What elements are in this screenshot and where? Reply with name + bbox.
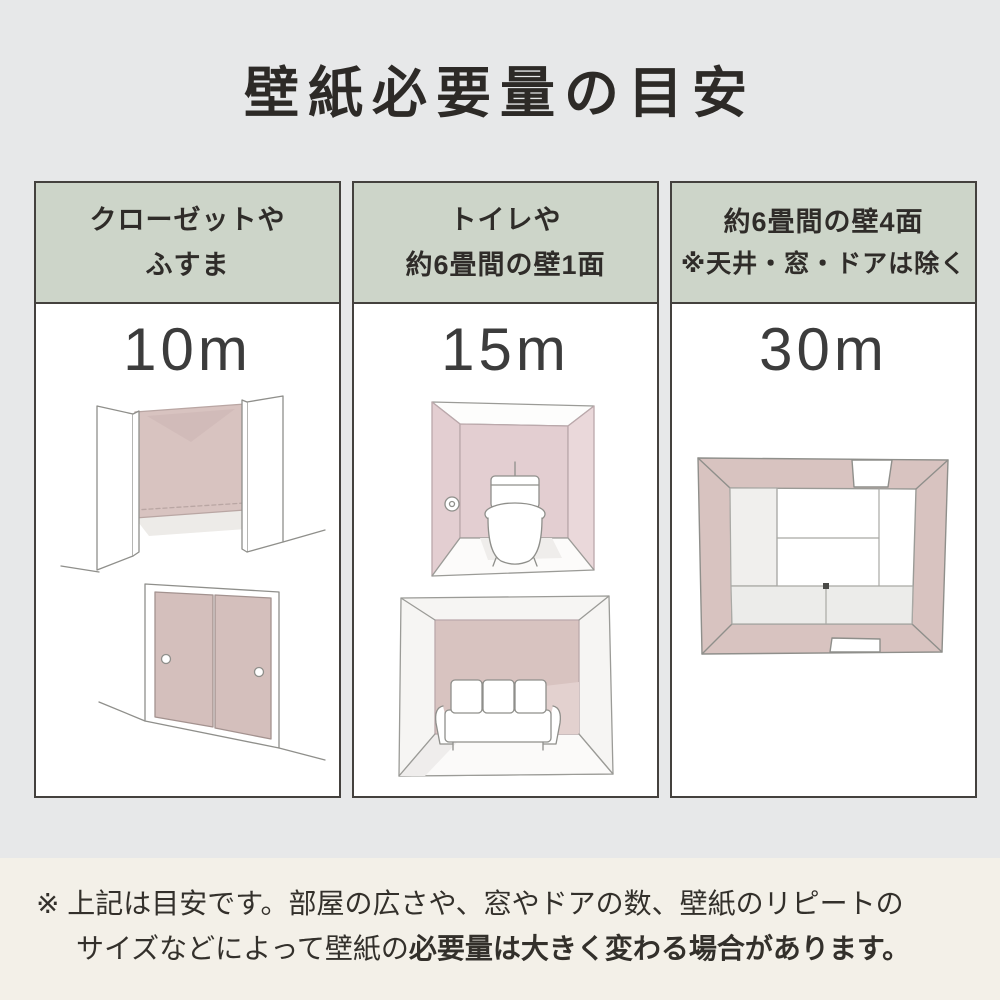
room-top-view-four-walls-illustration [682,426,965,676]
column-1-header: クローゼットや ふすま [36,183,339,304]
column-3-header-line-2: ※天井・窓・ドアは除く [681,244,966,285]
column-3-header-line-1: 約6畳間の壁4面 [723,200,923,245]
footnote-line-1: ※ 上記は目安です。部屋の広さや、窓やドアの数、壁紙のリピートの [36,882,970,927]
column-3-body: 30m [672,304,975,796]
footnote-line-2: サイズなどによって壁紙の必要量は大きく変わる場合があります。 [36,927,970,972]
amount-15m: 15m [441,320,570,380]
amount-30m: 30m [759,320,888,380]
column-3-header: 約6畳間の壁4面 ※天井・窓・ドアは除く [672,183,975,304]
column-2-body: 15m [354,304,657,796]
footnote-text-1: 上記は目安です。部屋の広さや、窓やドアの数、壁紙のリピートの [67,888,903,919]
closet-open-doors-illustration [45,386,330,578]
amount-10m: 10m [123,320,252,380]
column-closet-fusuma: クローゼットや ふすま 10m [34,181,341,798]
column-four-walls: 約6畳間の壁4面 ※天井・窓・ドアは除く 30m [670,181,977,798]
column-2-header-line-1: トイレや [450,198,562,243]
footnote-text-2-emphasis: 必要量は大きく変わる場合があります。 [409,933,910,964]
column-2-header: トイレや 約6畳間の壁1面 [354,183,657,304]
column-1-body: 10m [36,304,339,796]
column-1-header-line-1: クローゼットや [90,198,286,243]
column-1-header-line-2: ふすま [146,243,230,288]
wallpaper-quantity-guide: 壁紙必要量の目安 クローゼットや ふすま 10m [0,0,1000,1000]
footnote-text-2: サイズなどによって壁紙の [76,933,409,964]
column-2-header-line-2: 約6畳間の壁1面 [405,243,605,288]
guide-columns: クローゼットや ふすま 10m [34,181,977,798]
room-one-accent-wall-sofa-illustration [387,584,624,791]
footnote: ※ 上記は目安です。部屋の広さや、窓やドアの数、壁紙のリピートの サイズなどによ… [0,858,1000,1000]
toilet-room-illustration [396,386,616,584]
page-title: 壁紙必要量の目安 [0,48,1000,128]
fusuma-sliding-doors-illustration [45,578,330,780]
footnote-marker: ※ [36,888,59,919]
column-toilet-one-wall: トイレや 約6畳間の壁1面 15m [352,181,659,798]
